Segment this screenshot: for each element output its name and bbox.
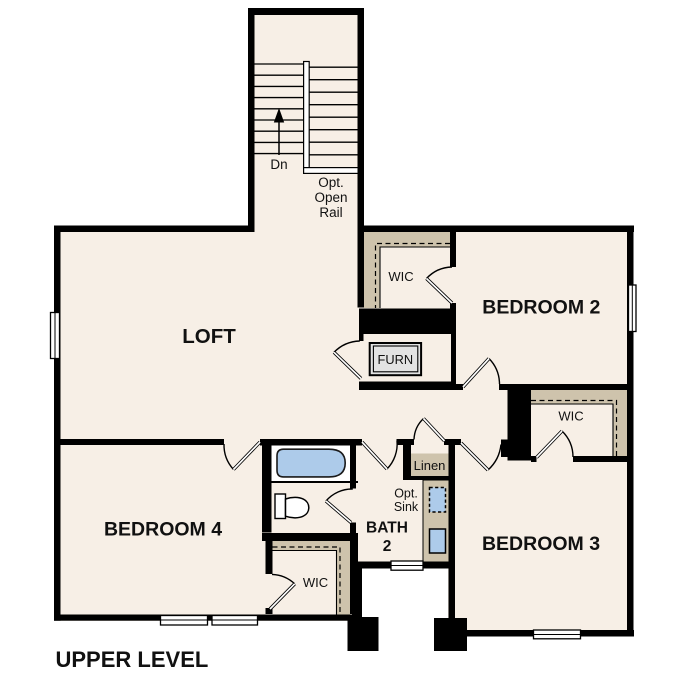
svg-text:Opt.: Opt. xyxy=(394,487,418,501)
svg-text:BATH: BATH xyxy=(366,520,408,537)
svg-text:Sink: Sink xyxy=(394,500,419,514)
svg-text:BEDROOM 4: BEDROOM 4 xyxy=(104,519,222,541)
svg-text:2: 2 xyxy=(383,538,392,555)
svg-text:BEDROOM 3: BEDROOM 3 xyxy=(482,533,600,555)
svg-text:WIC: WIC xyxy=(558,409,583,424)
svg-text:Opt.: Opt. xyxy=(318,175,344,190)
svg-text:UPPER LEVEL: UPPER LEVEL xyxy=(56,647,209,672)
svg-text:Rail: Rail xyxy=(319,205,342,220)
svg-text:Dn: Dn xyxy=(270,157,287,172)
svg-text:WIC: WIC xyxy=(388,269,413,284)
svg-text:BEDROOM 2: BEDROOM 2 xyxy=(482,297,600,319)
svg-text:LOFT: LOFT xyxy=(182,325,236,348)
svg-text:WIC: WIC xyxy=(303,575,328,590)
svg-text:Linen: Linen xyxy=(414,458,446,473)
svg-text:FURN: FURN xyxy=(378,352,414,367)
svg-text:Open: Open xyxy=(314,190,347,205)
